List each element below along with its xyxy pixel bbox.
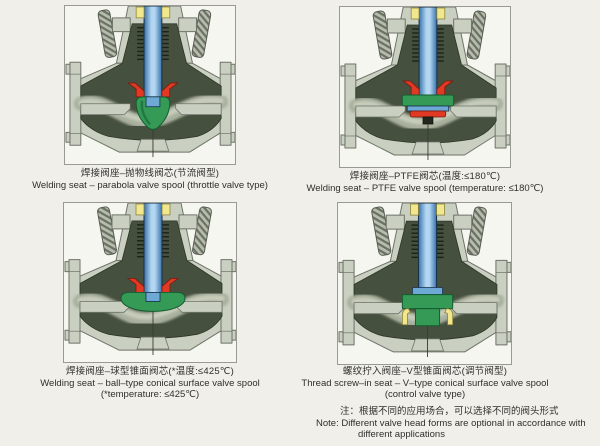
caption-en: Welding seat – ball–type conical surface… [20, 378, 280, 390]
caption-en: Welding seat – parabola valve spool (thr… [20, 180, 280, 192]
footnote-zh: 注：根据不同的应用场合，可以选择不同的阀头形式 [316, 406, 598, 418]
valve-diagram-panel-2 [339, 6, 511, 168]
catalog-page: { "panels": [ { "variant": "parabola", "… [0, 0, 600, 446]
valve-cross-section-ptfe-spool [340, 7, 510, 167]
valve-diagram-panel-4 [337, 202, 512, 365]
caption-en-line2: (control valve type) [294, 389, 556, 401]
caption-panel-4: 螺纹拧入阀座–V型锥面阀芯(调节阀型) Thread screw–in seat… [294, 366, 556, 401]
caption-en: Welding seat – PTFE valve spool (tempera… [296, 183, 554, 195]
caption-en: Thread screw–in seat – V–type conical su… [294, 378, 556, 390]
caption-zh: 焊接阀座–PTFE阀芯(温度:≤180℃) [296, 171, 554, 183]
footnote: 注：根据不同的应用场合，可以选择不同的阀头形式 Note: Different … [316, 406, 598, 441]
caption-panel-3: 焊接阀座–球型锥面阀芯(*温度:≤425℃) Welding seat – ba… [20, 366, 280, 401]
caption-panel-1: 焊接阀座–抛物线阀芯(节流阀型) Welding seat – parabola… [20, 168, 280, 191]
valve-diagram-panel-3 [63, 202, 237, 363]
valve-cross-section-ball-spool [64, 203, 236, 362]
footnote-en-line1: Note: Different valve head forms are opt… [316, 418, 598, 430]
caption-zh: 螺纹拧入阀座–V型锥面阀芯(调节阀型) [294, 366, 556, 378]
footnote-en-line2: different applications [316, 429, 598, 441]
valve-cross-section-vtype-spool [338, 203, 511, 364]
valve-diagram-panel-1 [64, 5, 236, 165]
caption-zh: 焊接阀座–球型锥面阀芯(*温度:≤425℃) [20, 366, 280, 378]
caption-zh: 焊接阀座–抛物线阀芯(节流阀型) [20, 168, 280, 180]
caption-panel-2: 焊接阀座–PTFE阀芯(温度:≤180℃) Welding seat – PTF… [296, 171, 554, 194]
valve-cross-section-parabola-spool [65, 6, 235, 164]
caption-en-line2: (*temperature: ≤425℃) [20, 389, 280, 401]
